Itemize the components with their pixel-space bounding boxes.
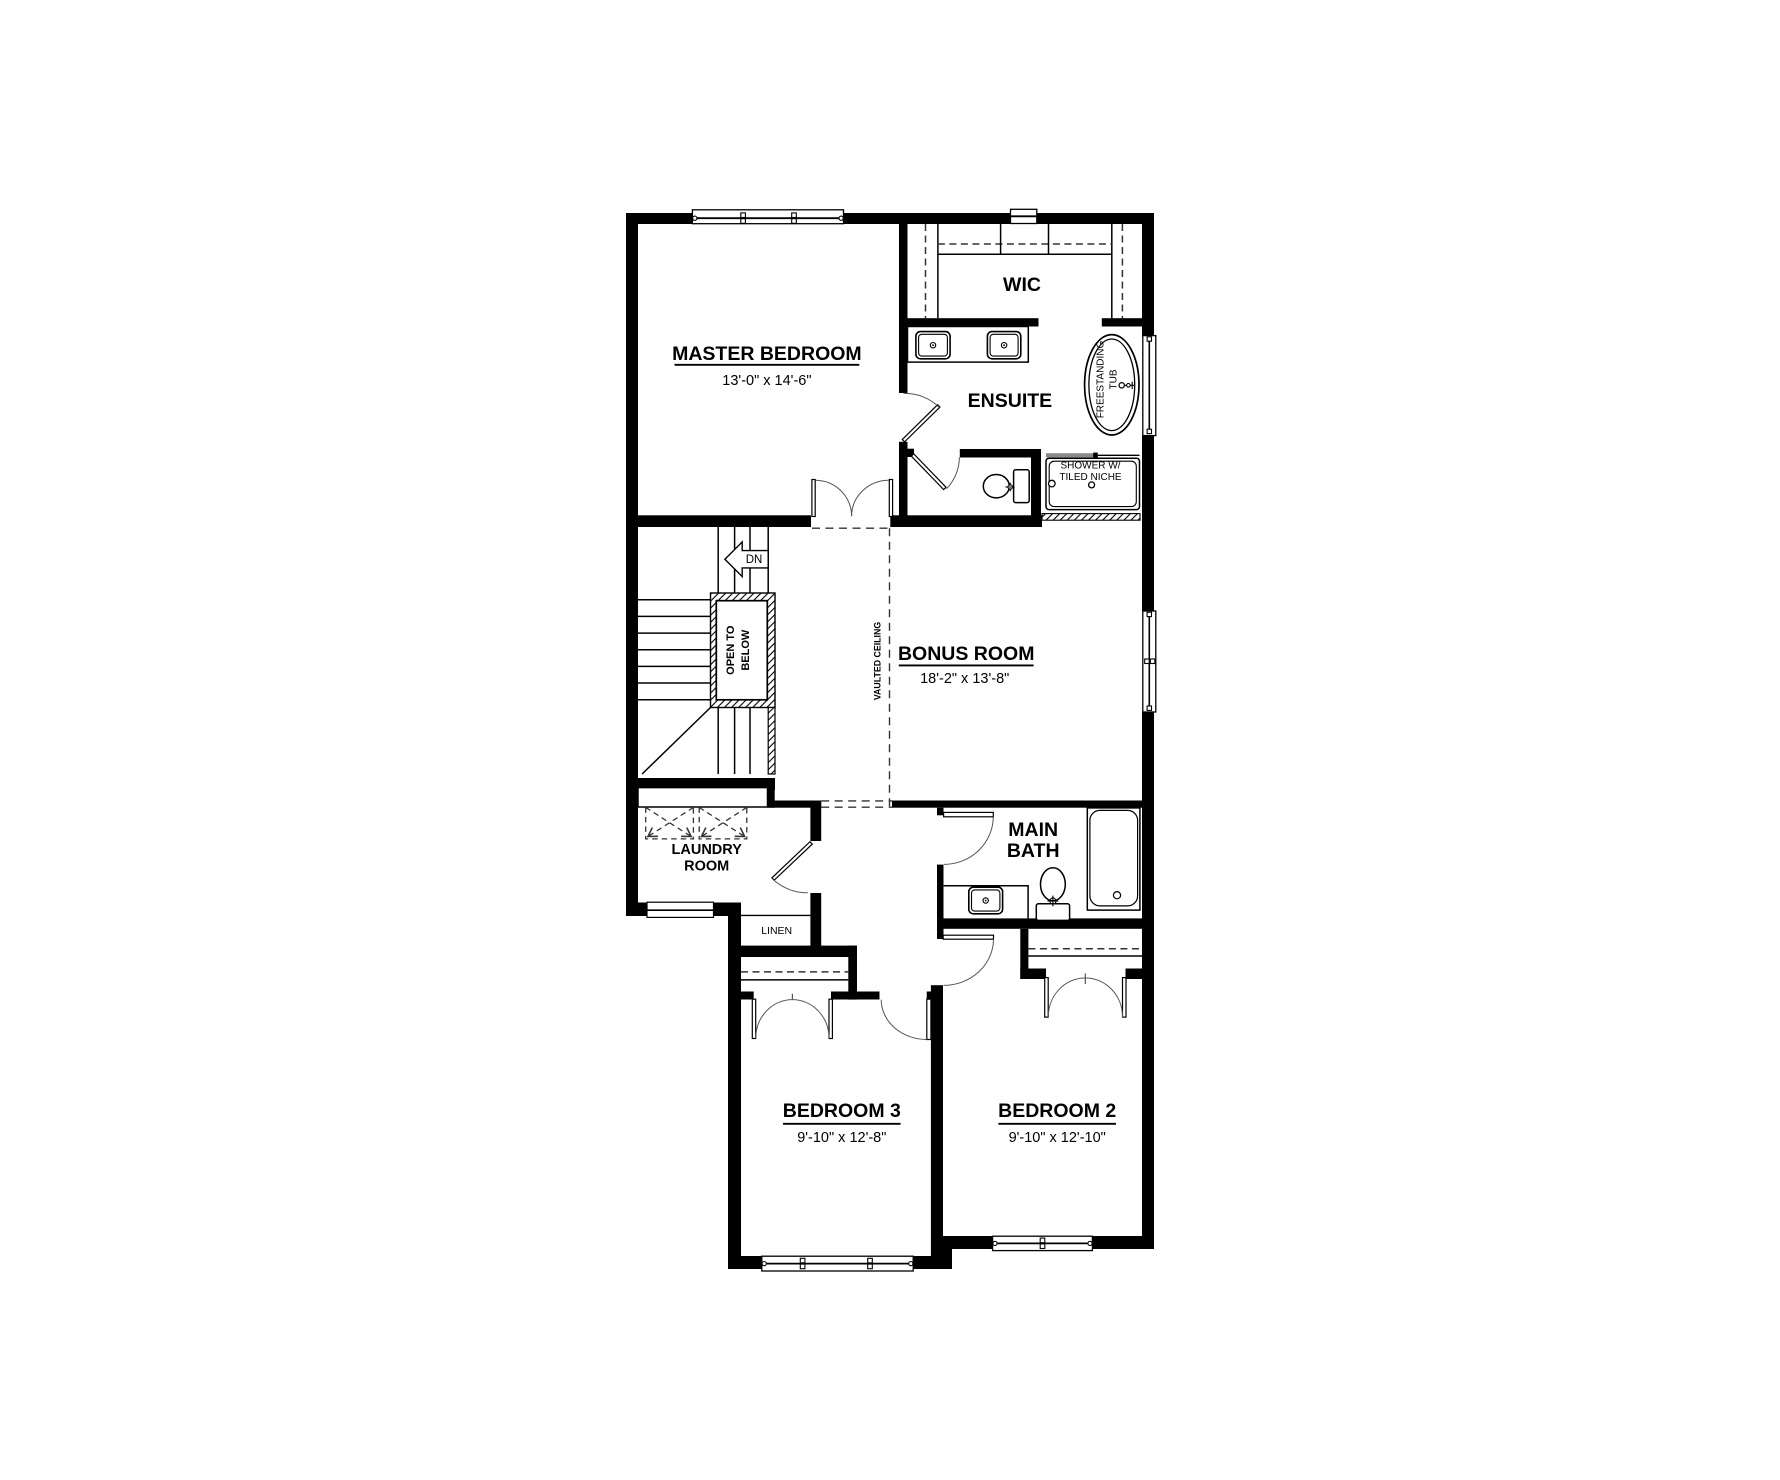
svg-text:BEDROOM 2: BEDROOM 2: [998, 1100, 1116, 1122]
svg-text:18'-2" x 13'-8": 18'-2" x 13'-8": [920, 671, 1009, 687]
svg-text:MAIN: MAIN: [1008, 819, 1058, 841]
svg-text:LINEN: LINEN: [761, 925, 792, 937]
svg-text:ROOM: ROOM: [684, 859, 729, 875]
svg-text:ENSUITE: ENSUITE: [968, 390, 1053, 412]
svg-text:TUB: TUB: [1109, 369, 1120, 389]
svg-text:OPEN TO: OPEN TO: [725, 625, 737, 675]
svg-text:TILED NICHE: TILED NICHE: [1059, 472, 1122, 483]
svg-text:VAULTED CEILING: VAULTED CEILING: [873, 622, 883, 701]
svg-text:LAUNDRY: LAUNDRY: [672, 842, 743, 858]
svg-text:FREESTANDING: FREESTANDING: [1096, 340, 1107, 418]
svg-text:BELOW: BELOW: [740, 629, 752, 671]
svg-text:BONUS ROOM: BONUS ROOM: [898, 643, 1035, 665]
svg-text:WIC: WIC: [1003, 274, 1041, 296]
svg-text:BEDROOM 3: BEDROOM 3: [783, 1100, 901, 1122]
svg-text:9'-10" x 12'-8": 9'-10" x 12'-8": [797, 1130, 886, 1146]
svg-text:SHOWER W/: SHOWER W/: [1061, 461, 1121, 472]
svg-text:DN: DN: [746, 554, 763, 566]
svg-text:13'-0" x 14'-6": 13'-0" x 14'-6": [722, 373, 811, 389]
svg-text:BATH: BATH: [1007, 840, 1060, 862]
svg-text:9'-10" x 12'-10": 9'-10" x 12'-10": [1009, 1130, 1106, 1146]
svg-text:MASTER BEDROOM: MASTER BEDROOM: [672, 343, 862, 365]
